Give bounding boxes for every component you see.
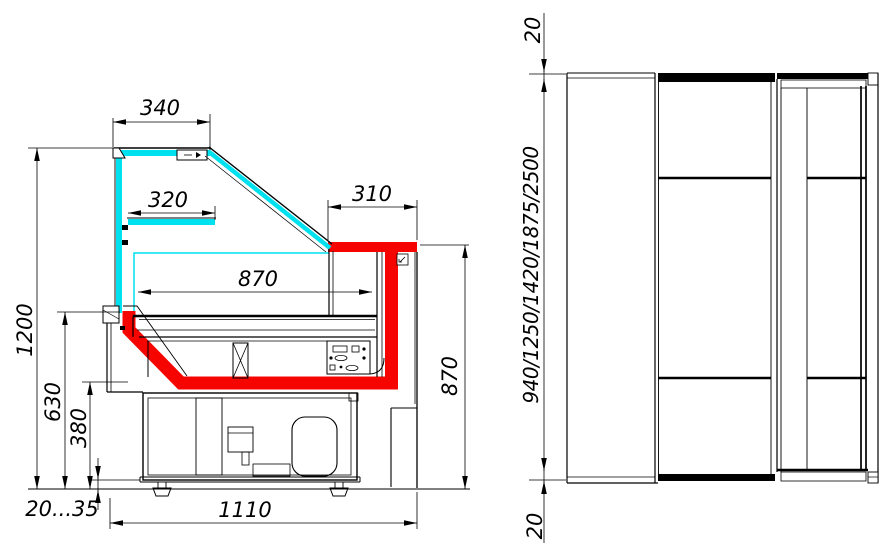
- dim-rear-height: 870: [438, 356, 462, 396]
- panel-dot-4: [340, 366, 343, 369]
- front-view-dimensions: 20 940/1250/1420/1875/2500 20: [519, 13, 566, 543]
- electric-box: [228, 427, 253, 452]
- box-pedestal: [242, 452, 249, 465]
- side-section-view: 340 320 310 870 1200 630 380 20...35: [13, 96, 470, 529]
- front-structure: [567, 73, 878, 483]
- shelf-bracket-upper: [122, 225, 128, 230]
- dim-display-depth: 870: [238, 267, 278, 291]
- panel-dot-3: [362, 356, 365, 359]
- dim-shelf-depth: 320: [148, 188, 188, 212]
- side-view-dimensions: 340 320 310 870 1200 630 380 20...35: [13, 96, 470, 529]
- mid-top-band: [658, 73, 775, 82]
- technical-drawing: 340 320 310 870 1200 630 380 20...35: [0, 0, 894, 559]
- dim-deck-height: 630: [41, 382, 65, 422]
- sloped-glass-outer-edge: [209, 147, 332, 244]
- front-elevation-view: 20 940/1250/1420/1875/2500 20: [519, 13, 878, 543]
- panel-dot-2: [329, 356, 332, 359]
- dim-bottom-clearance: 20: [523, 513, 547, 540]
- foot-stem-left: [158, 482, 166, 488]
- evaporator-panel: [196, 398, 222, 475]
- panel-dot-1: [362, 347, 365, 350]
- compressor: [292, 417, 337, 476]
- dim-worktop-depth: 310: [352, 182, 392, 206]
- dim-foot-adjust: 20...35: [25, 497, 98, 521]
- dim-length-options: 940/1250/1420/1875/2500: [519, 146, 543, 403]
- machine-compartment-inner: [148, 398, 351, 475]
- right-bottom-strip: [781, 472, 866, 481]
- sloped-glass-inner-edge: [205, 156, 326, 252]
- dim-well-height: 380: [67, 408, 91, 448]
- glass-group: [115, 150, 330, 313]
- dim-canopy-depth: 340: [140, 96, 180, 120]
- mid-bottom-band: [658, 474, 775, 481]
- rear-lower-panel: [391, 408, 417, 487]
- sloped-glass: [208, 151, 330, 248]
- dim-overall-height: 1200: [13, 303, 37, 356]
- machine-compartment: [143, 393, 357, 480]
- dim-top-clearance: 20: [521, 17, 545, 44]
- shelf-bracket-lower: [122, 240, 128, 245]
- right-top-strip: [781, 80, 866, 88]
- drain-tray: [253, 464, 290, 476]
- right-bottom-corner-box: [868, 472, 878, 483]
- ext-310: [328, 200, 417, 240]
- dim-base-depth: 1110: [218, 498, 271, 522]
- right-top-corner-box: [868, 73, 878, 85]
- drawing-canvas: 340 320 310 870 1200 630 380 20...35: [0, 0, 894, 559]
- right-top-band: [777, 73, 868, 79]
- liner-outline: [134, 253, 329, 311]
- foot-stem-right: [335, 482, 343, 488]
- liner-tick: [120, 326, 125, 330]
- cross-brace-x-icon: [233, 343, 248, 378]
